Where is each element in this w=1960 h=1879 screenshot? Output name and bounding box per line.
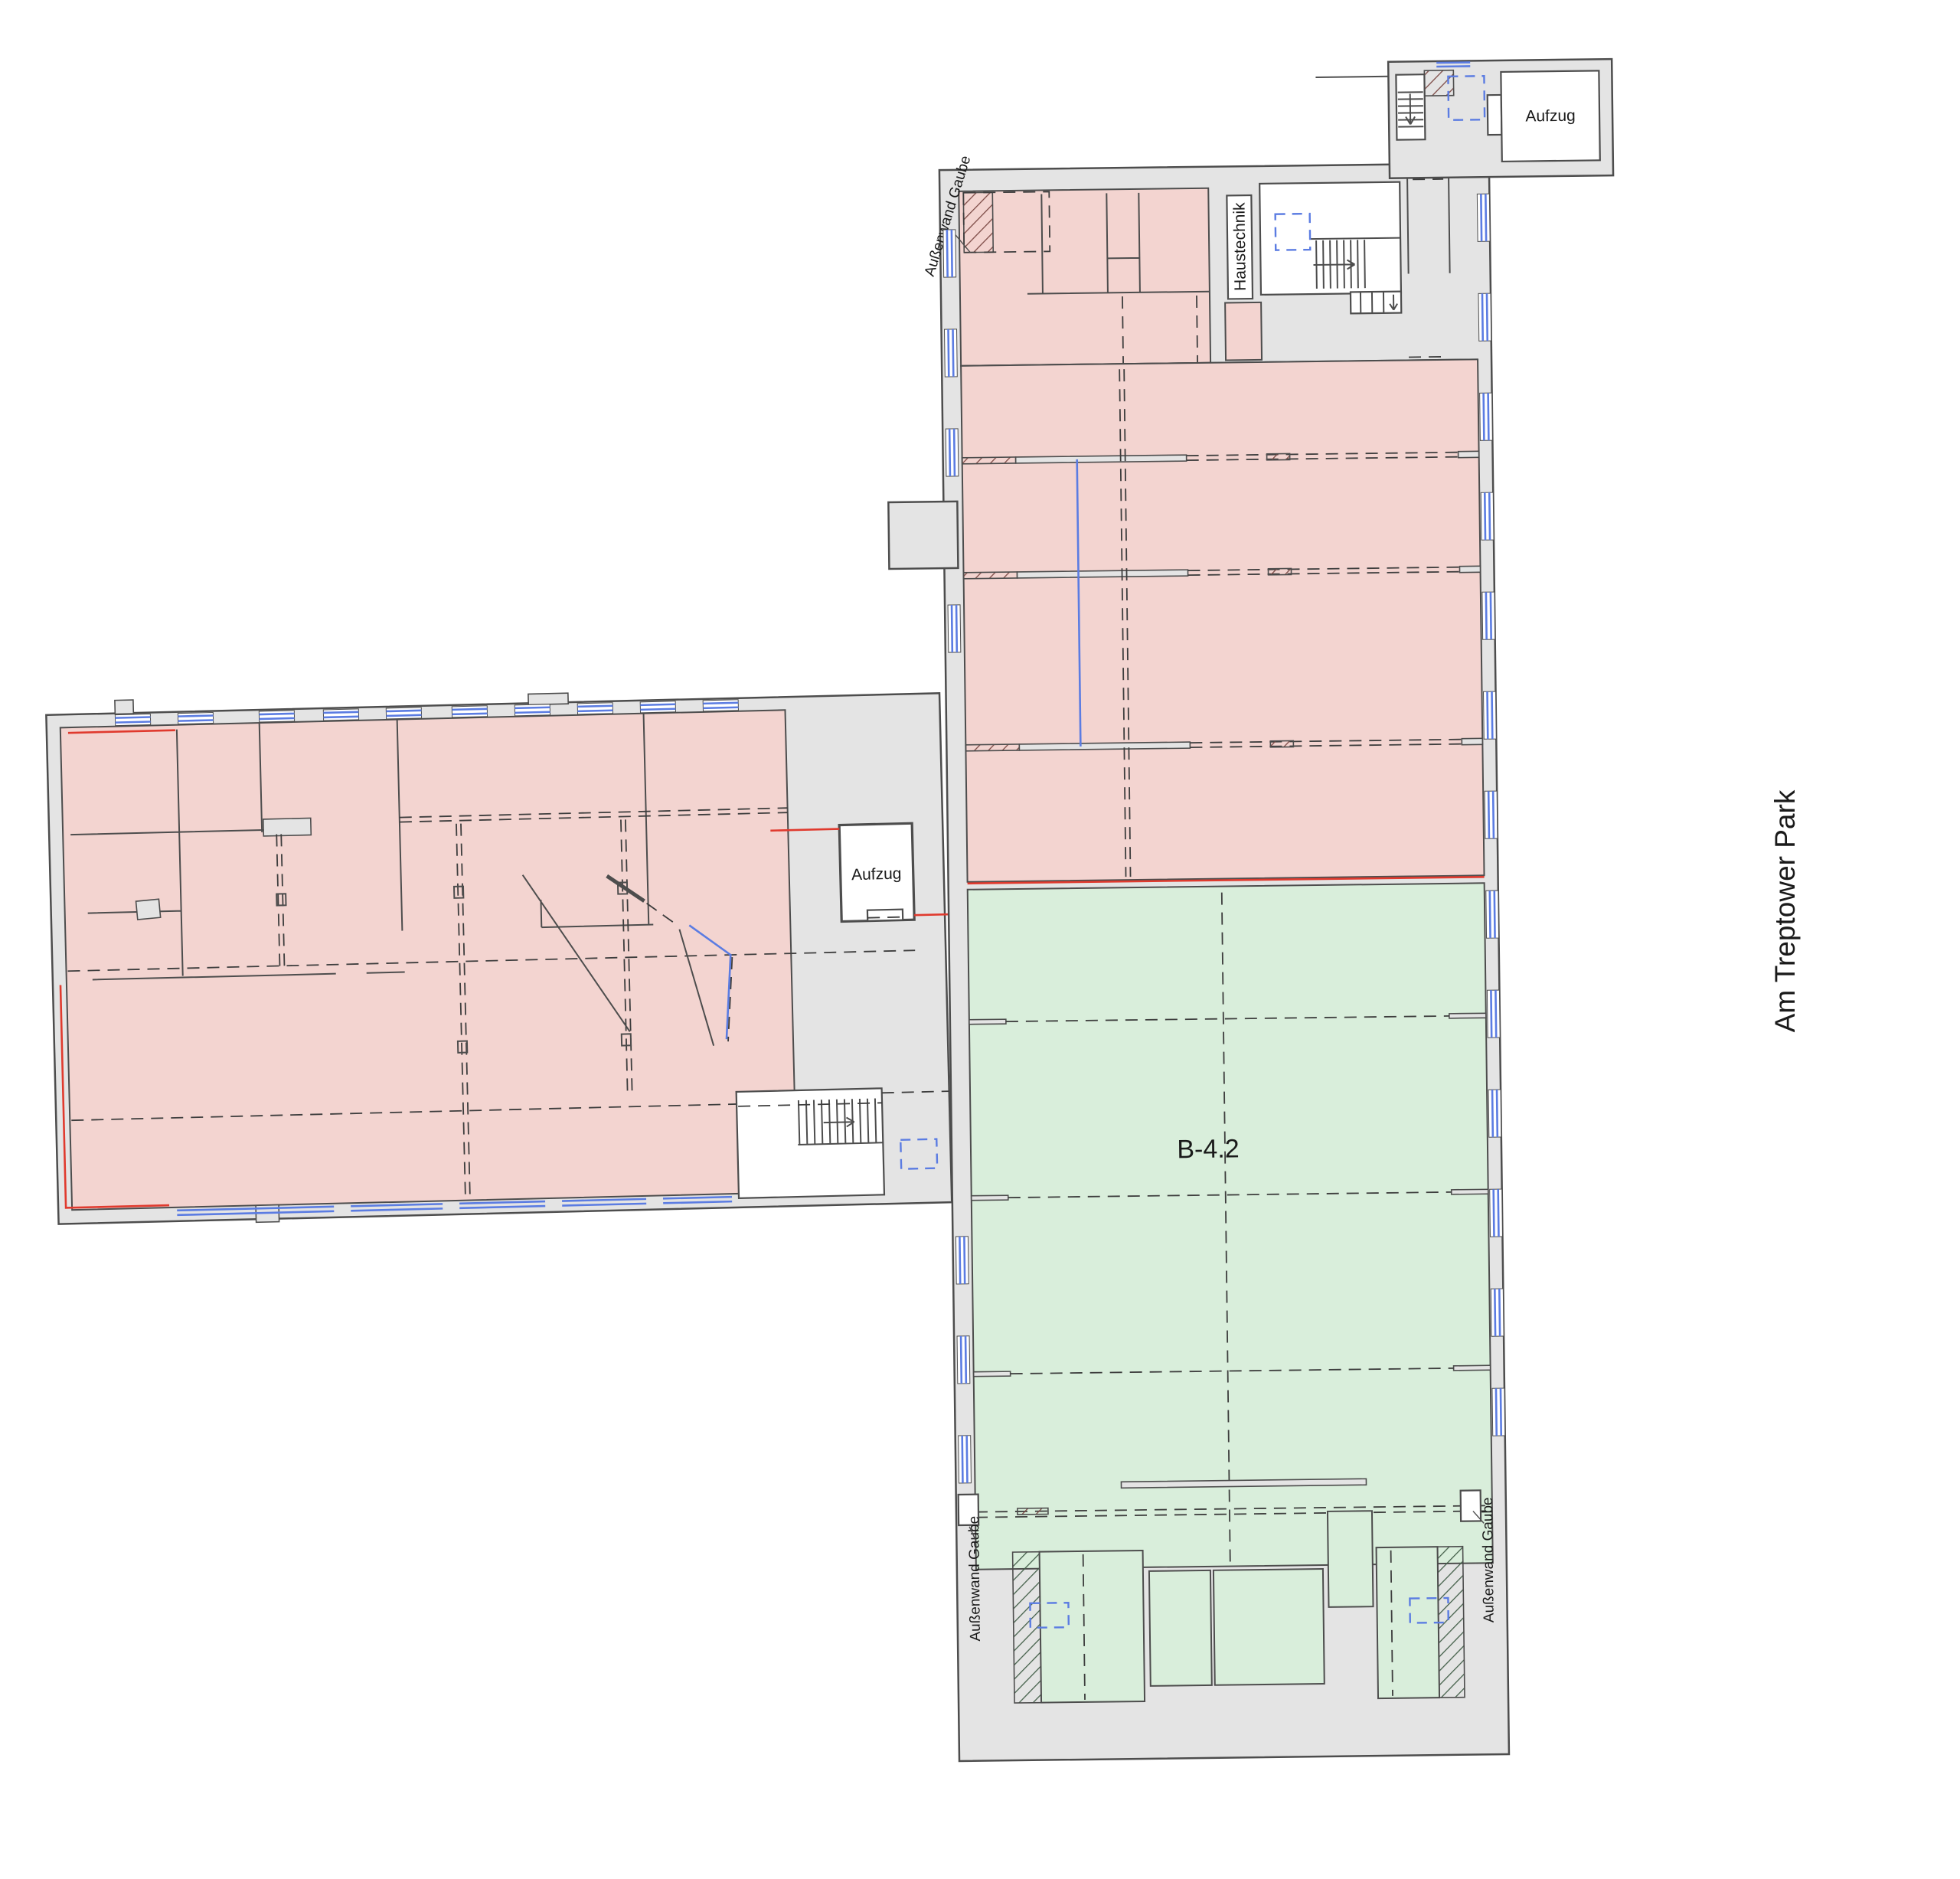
chimney-stub xyxy=(115,700,133,714)
pink-hall xyxy=(961,359,1484,883)
elevator-mid-label: Aufzug xyxy=(851,865,902,884)
unit-room-green xyxy=(1214,1569,1325,1685)
dormer-label-bottom-right: Außenwand Gaube xyxy=(1480,1497,1498,1622)
unit-rooms-pink xyxy=(959,188,1210,366)
unit-b42-label: B-4.2 xyxy=(1177,1134,1240,1164)
unit-room-green xyxy=(1328,1511,1374,1607)
left-wing-unit-area xyxy=(60,710,797,1210)
pier xyxy=(263,818,312,836)
floor-plan-svg: Aufzug Aufzug xyxy=(0,0,1960,1879)
street-label: Am Treptower Park xyxy=(1769,789,1801,1032)
unit-hall-pink xyxy=(961,359,1484,881)
right-wing: Aufzug Haustechnik xyxy=(883,59,1633,1762)
green-hall: B-4.2 xyxy=(968,883,1493,1569)
elevator-door xyxy=(1488,95,1502,135)
left-wing: Aufzug xyxy=(46,680,969,1227)
elevator-top-label: Aufzug xyxy=(1525,107,1576,126)
floor-plan-canvas: Aufzug Aufzug xyxy=(0,0,1960,1879)
haustechnik-label: Haustechnik xyxy=(1230,202,1249,291)
bay-protrusion xyxy=(888,502,958,569)
unit-room-small xyxy=(1225,302,1262,361)
hatched-dormer-strip xyxy=(1013,1552,1041,1703)
reference-line xyxy=(1315,77,1388,77)
wall-stub xyxy=(528,693,568,704)
hatched-shaft xyxy=(963,192,993,252)
unit-hall-green xyxy=(968,883,1493,1569)
hatched-shaft xyxy=(1424,70,1453,96)
dormer-label-bottom-left: Außenwand Gaube xyxy=(966,1516,984,1642)
unit-room-green xyxy=(1377,1547,1439,1698)
pier xyxy=(136,899,161,920)
unit-room-green xyxy=(1149,1570,1212,1686)
